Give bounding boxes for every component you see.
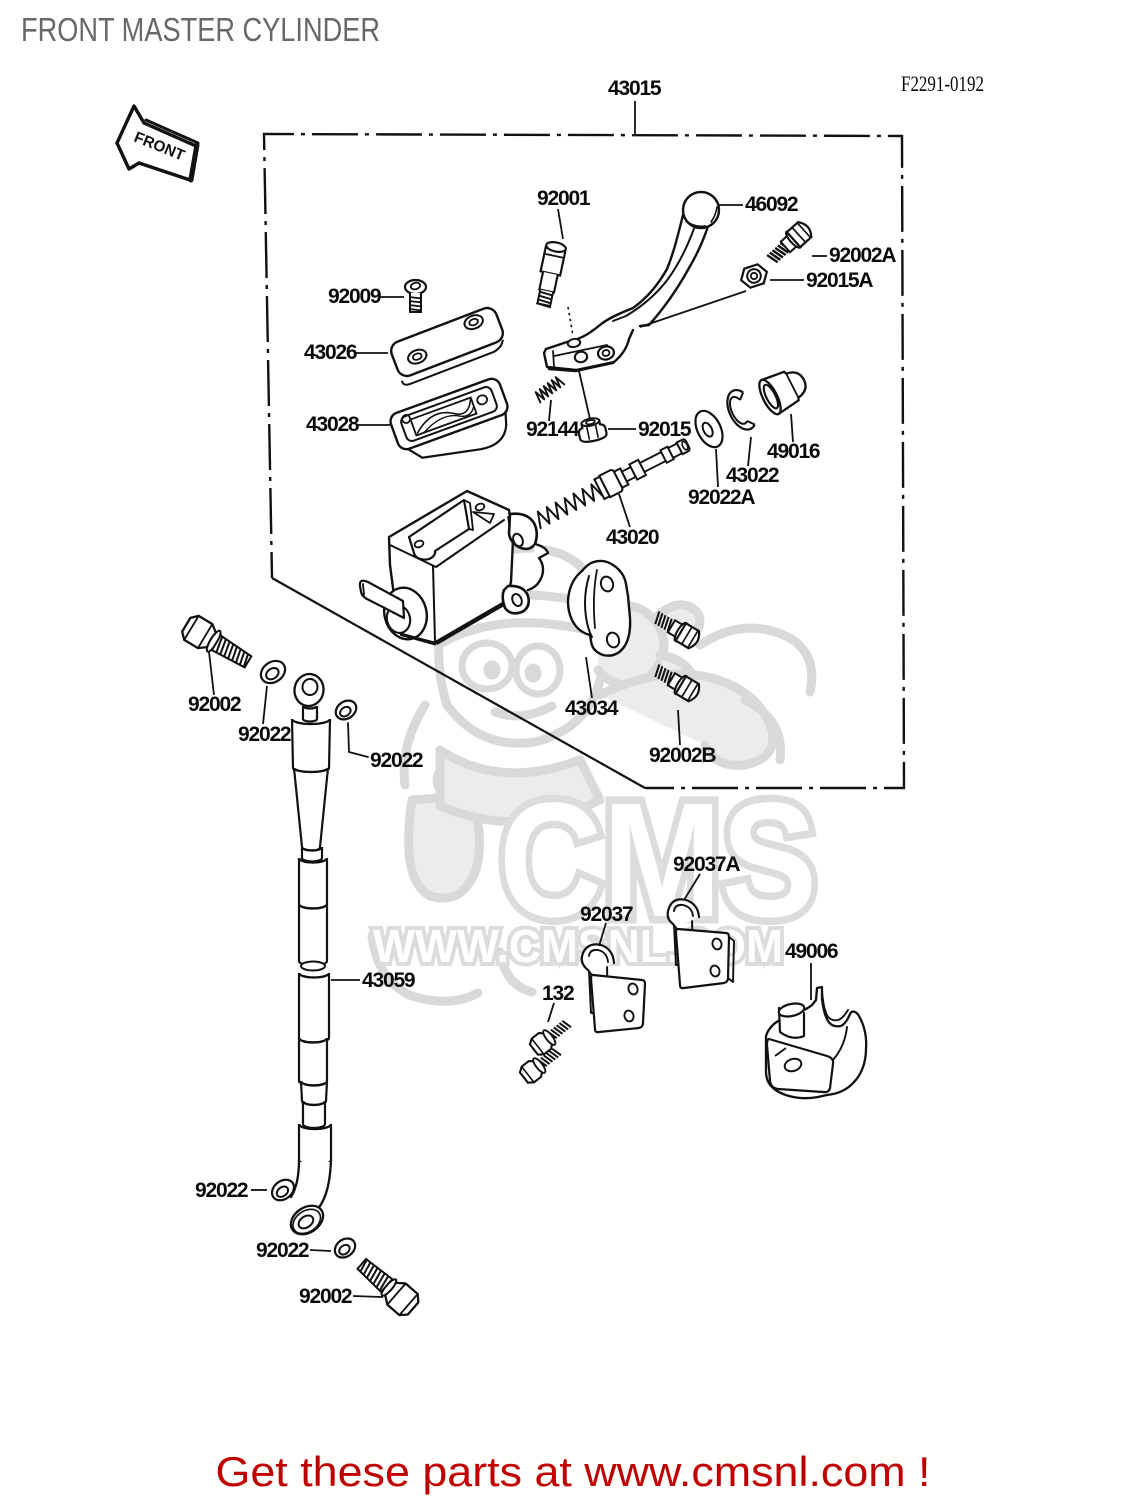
svg-text:92015: 92015 xyxy=(638,418,692,441)
svg-text:Get these parts at www.cmsnl.c: Get these parts at www.cmsnl.com ! xyxy=(216,1448,931,1495)
svg-text:92002A: 92002A xyxy=(829,244,896,267)
svg-text:92022: 92022 xyxy=(238,723,291,746)
svg-text:43034: 43034 xyxy=(565,697,619,720)
svg-text:92009: 92009 xyxy=(328,285,381,308)
svg-text:92037A: 92037A xyxy=(673,853,740,876)
svg-text:92144: 92144 xyxy=(526,418,580,441)
svg-text:46092: 46092 xyxy=(745,193,798,216)
svg-text:49016: 49016 xyxy=(767,440,820,463)
svg-text:92037: 92037 xyxy=(580,903,633,926)
svg-text:92002: 92002 xyxy=(299,1285,352,1308)
svg-text:92002B: 92002B xyxy=(649,744,716,767)
svg-text:92022: 92022 xyxy=(195,1179,248,1202)
svg-text:43020: 43020 xyxy=(606,526,659,549)
svg-text:132: 132 xyxy=(542,982,574,1005)
svg-text:92015A: 92015A xyxy=(806,269,873,292)
svg-text:FRONT MASTER CYLINDER: FRONT MASTER CYLINDER xyxy=(21,11,380,48)
svg-text:92022: 92022 xyxy=(370,749,423,772)
svg-text:43059: 43059 xyxy=(362,969,415,992)
svg-text:43015: 43015 xyxy=(608,77,662,100)
svg-text:92022: 92022 xyxy=(256,1239,309,1262)
svg-text:F2291-0192: F2291-0192 xyxy=(901,71,984,96)
svg-text:92001: 92001 xyxy=(537,187,591,210)
svg-text:43026: 43026 xyxy=(304,341,357,364)
svg-text:92002: 92002 xyxy=(188,693,241,716)
svg-text:43028: 43028 xyxy=(306,413,360,436)
svg-text:49006: 49006 xyxy=(785,940,838,963)
svg-text:43022: 43022 xyxy=(726,464,779,487)
svg-text:92022A: 92022A xyxy=(688,486,755,509)
